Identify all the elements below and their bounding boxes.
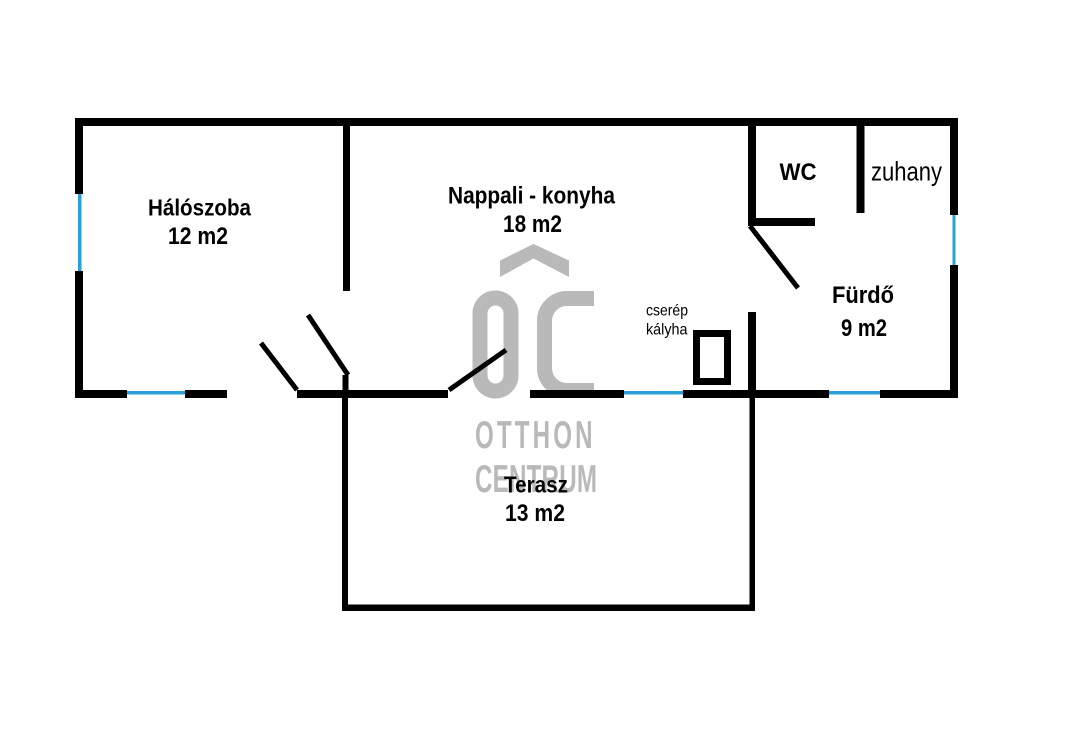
- svg-text:13 m2: 13 m2: [505, 500, 565, 527]
- svg-text:Terasz: Terasz: [504, 472, 568, 498]
- svg-text:cserép: cserép: [646, 303, 688, 320]
- svg-text:12 m2: 12 m2: [168, 223, 228, 250]
- svg-text:zuhany: zuhany: [871, 157, 942, 187]
- svg-text:Hálószoba: Hálószoba: [148, 195, 251, 221]
- svg-text:18 m2: 18 m2: [503, 211, 562, 238]
- svg-text:Nappali - konyha: Nappali - konyha: [448, 183, 616, 210]
- svg-text:kályha: kályha: [646, 322, 688, 339]
- svg-text:WC: WC: [780, 159, 817, 186]
- svg-text:9 m2: 9 m2: [841, 315, 887, 342]
- svg-text:OTTHON: OTTHON: [475, 413, 596, 456]
- svg-text:Fürdő: Fürdő: [832, 282, 894, 309]
